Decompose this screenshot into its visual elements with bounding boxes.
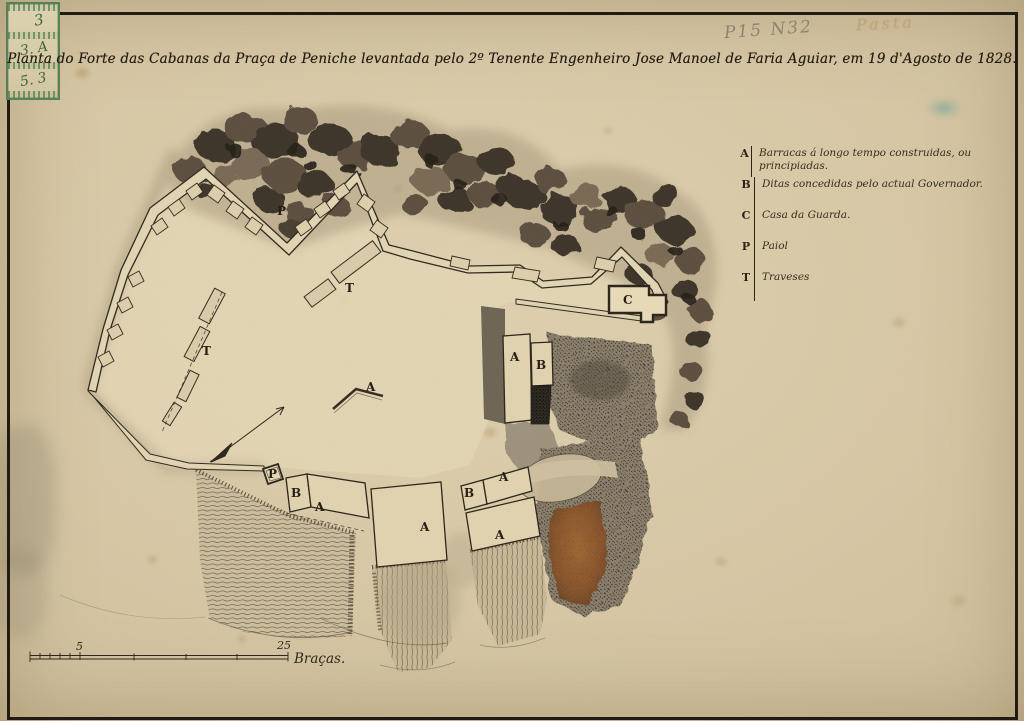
legend-row: T Traveses — [738, 270, 990, 301]
stamp-ornament — [8, 91, 58, 98]
legend-label: Traveses — [754, 270, 809, 301]
map-title: Planta do Forte das Cabanas da Praça de … — [7, 51, 1016, 67]
stamp-ornament — [8, 32, 58, 39]
legend-key: T — [738, 270, 754, 284]
faded-ink-annotation: Pasta — [856, 12, 916, 34]
stamp-handwriting: 3 — [33, 10, 46, 29]
legend-label: Barracas á longo tempo construidas, ou p… — [751, 146, 990, 177]
legend-row: P Paiol — [738, 239, 990, 270]
legend-row: C Casa da Guarda. — [738, 208, 990, 239]
legend-label: Casa da Guarda. — [754, 208, 850, 239]
legend-key: A — [738, 146, 751, 160]
legend-key: P — [738, 239, 754, 253]
fort-plan-drawing: 525 Braças. PTTAABCPBAABAA — [0, 0, 1024, 721]
legend-row: A Barracas á longo tempo construidas, ou… — [738, 146, 990, 177]
legend-label: Paiol — [754, 239, 788, 270]
map-sheet: 525 Braças. PTTAABCPBAABAA 3 3. A 5. 3 P… — [0, 0, 1024, 721]
stamp-handwriting: 5. 3 — [19, 70, 48, 90]
legend-key: C — [738, 208, 754, 222]
paper-grain — [0, 0, 1024, 721]
legend-label: Ditas concedidas pelo actual Governador. — [754, 177, 983, 208]
stamp-ornament — [8, 4, 58, 11]
legend-rows: A Barracas á longo tempo construidas, ou… — [738, 146, 990, 301]
legend-key: B — [738, 177, 754, 191]
legend-row: B Ditas concedidas pelo actual Governado… — [738, 177, 990, 208]
legend: A Barracas á longo tempo construidas, ou… — [738, 146, 990, 301]
